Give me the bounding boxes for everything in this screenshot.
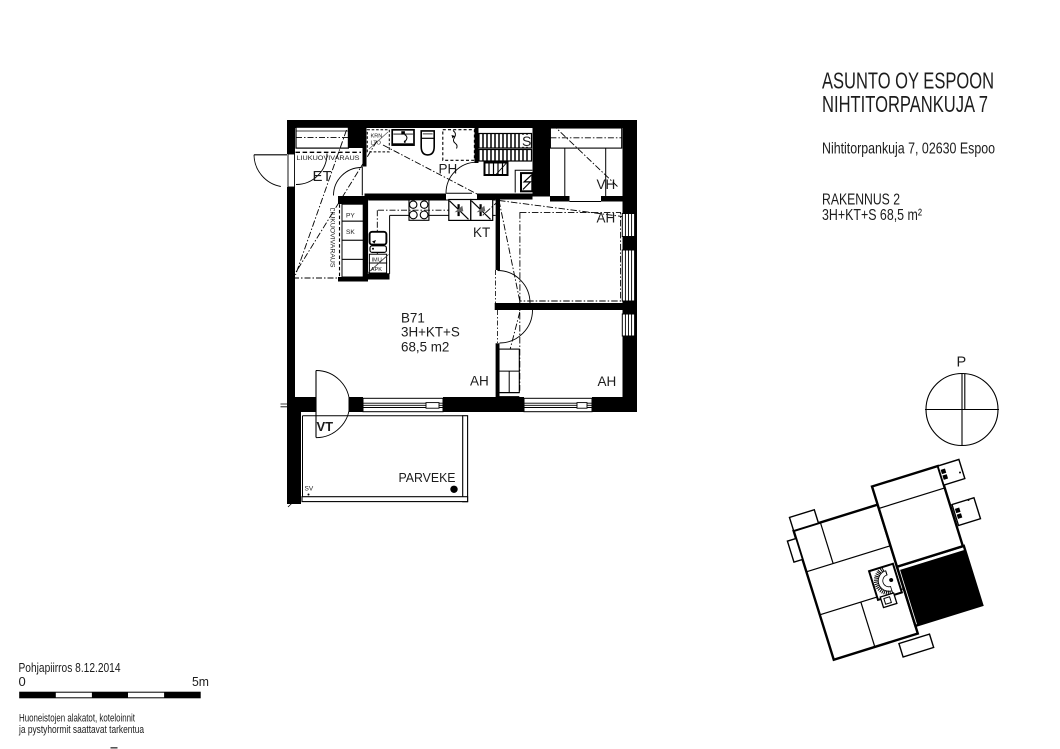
svg-text:ja pystyhormit saattavat tarke: ja pystyhormit saattavat tarkentua [18, 724, 144, 736]
svg-text:SK: SK [346, 229, 355, 236]
svg-text:SV: SV [305, 486, 314, 493]
svg-text:0: 0 [19, 674, 26, 689]
svg-text:VT: VT [317, 419, 334, 434]
svg-text:P: P [957, 355, 967, 371]
svg-text:AH: AH [470, 374, 489, 389]
svg-text:B71: B71 [401, 310, 425, 325]
svg-text:AH: AH [598, 374, 617, 389]
svg-text:KT: KT [473, 225, 490, 240]
svg-text:RAKENNUS 2: RAKENNUS 2 [822, 191, 900, 208]
svg-text:3H+KT+S: 3H+KT+S [401, 325, 460, 340]
svg-text:68,5 m2: 68,5 m2 [401, 340, 449, 355]
svg-text:3H+KT+S 68,5 m²: 3H+KT+S 68,5 m² [822, 207, 923, 224]
svg-text:LIUKUOVIVARAUS: LIUKUOVIVARAUS [329, 208, 336, 268]
svg-text:LIUKUOVIVARAUS: LIUKUOVIVARAUS [297, 155, 360, 162]
svg-text:NIHTITORPANKUJA 7: NIHTITORPANKUJA 7 [822, 91, 988, 117]
svg-text:PY: PY [346, 213, 355, 220]
svg-text:Huoneistojen alakatot, koteloi: Huoneistojen alakatot, koteloinnit [19, 713, 135, 725]
svg-text:PH: PH [439, 162, 458, 177]
svg-text:APK: APK [371, 267, 382, 273]
svg-text:LTO: LTO [371, 141, 382, 147]
svg-text:VH: VH [597, 177, 616, 192]
svg-text:PARVEKE: PARVEKE [399, 470, 456, 485]
svg-text:AH: AH [597, 211, 616, 226]
svg-text:5m: 5m [192, 674, 209, 689]
svg-text:ET: ET [313, 168, 332, 185]
svg-text:ASUNTO OY ESPOON: ASUNTO OY ESPOON [822, 67, 994, 93]
svg-text:Pohjapiirros 8.12.2014: Pohjapiirros 8.12.2014 [19, 660, 121, 675]
svg-text:Nihtitorpankuja 7, 02630 Espoo: Nihtitorpankuja 7, 02630 Espoo [822, 141, 995, 158]
svg-text:S: S [522, 133, 531, 149]
